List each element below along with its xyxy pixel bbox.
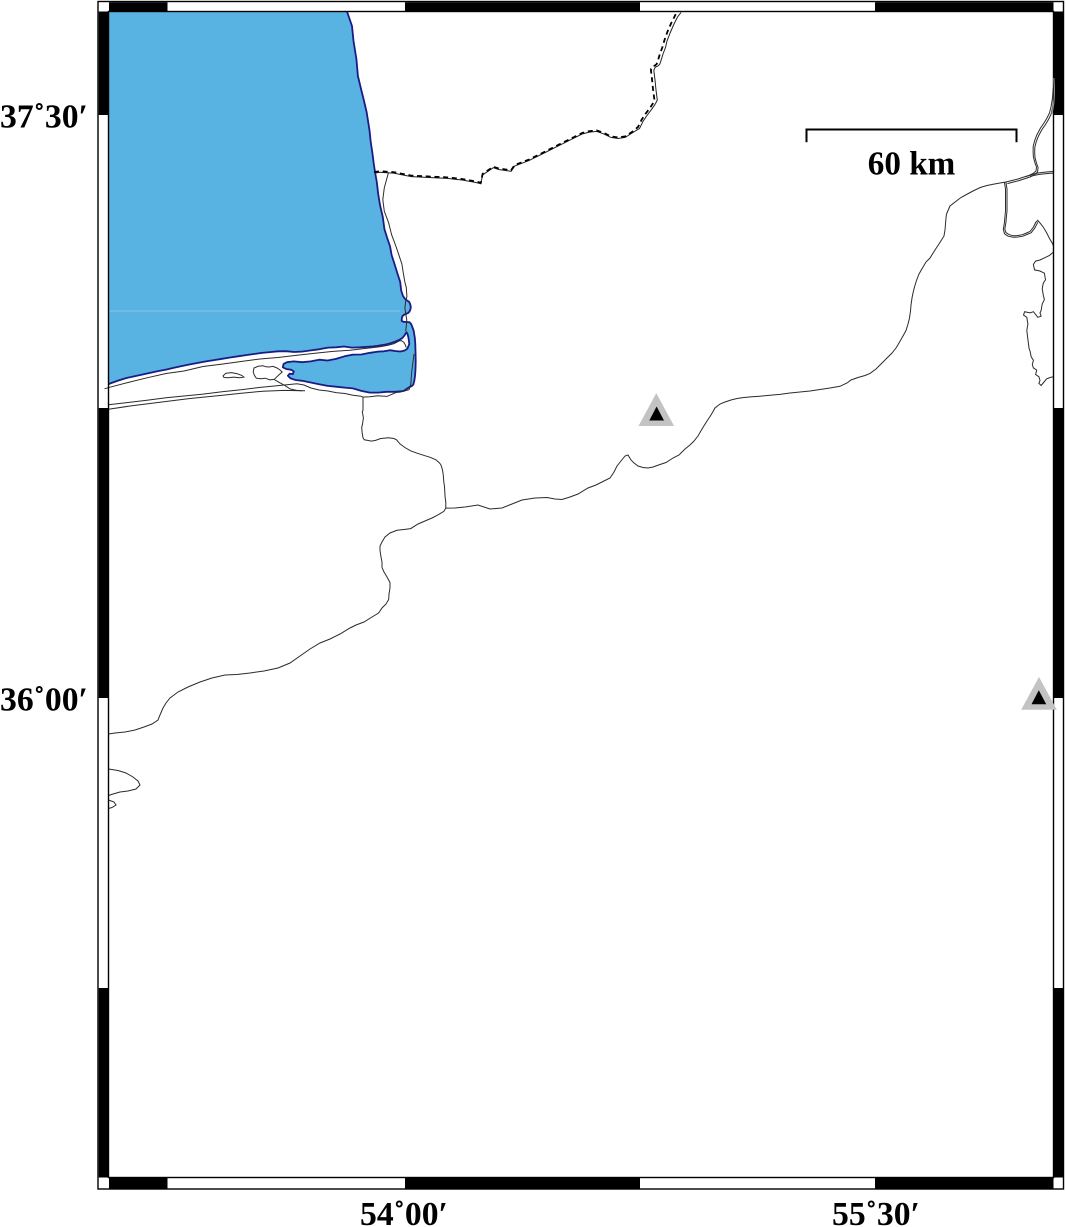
svg-text:60 km: 60 km xyxy=(868,145,956,182)
svg-text:36˚00′: 36˚00′ xyxy=(0,681,88,718)
svg-text:54˚00′: 54˚00′ xyxy=(360,1196,448,1227)
svg-text:37˚30′: 37˚30′ xyxy=(0,98,88,135)
svg-text:55˚30′: 55˚30′ xyxy=(832,1196,920,1227)
